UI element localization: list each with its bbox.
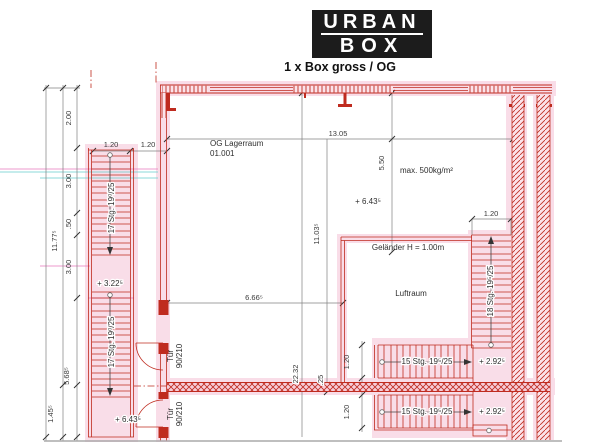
elevation-left-bottom: + 6.43⁵ (115, 415, 141, 424)
dim-0-25: .25 (316, 375, 325, 385)
dim-5-685: 5.68⁵ (62, 367, 71, 385)
bottom-wall (167, 383, 550, 392)
floor-plan-page: URBAN BOX 1 x Box gross / OG (0, 0, 600, 448)
door-2-size: 90/210 (175, 401, 184, 426)
dim-3-00-b: 3.00 (64, 260, 73, 275)
door-1-label: Tür (166, 350, 175, 362)
dim-2-00: 2.00 (64, 111, 73, 126)
dim-11-035: 11.03⁵ (312, 223, 321, 244)
stair-label-bottom-upper: 15 Stg. 19⁵/25 (402, 357, 453, 366)
room-number: 01.001 (210, 149, 235, 158)
dim-1-455: 1.45⁵ (46, 405, 55, 423)
dim-1-20-bottom-a: 1.20 (342, 355, 351, 370)
dim-13-05: 13.05 (329, 129, 348, 138)
room-name: OG Lagerraum (210, 139, 264, 148)
load-note: max. 500kg/m² (400, 166, 453, 175)
railing-label: Geländer H = 1.00m (372, 243, 445, 252)
dim-11-775: 11.77⁵ (50, 230, 59, 251)
stair-label-right: 18 Stg. 19⁵/25 (486, 265, 495, 316)
door-1-size: 90/210 (175, 343, 184, 368)
elevation-room: + 6.43⁵ (355, 197, 381, 206)
elevation-right-upper: + 2.92⁵ (479, 357, 505, 366)
dim-1-20-left-a: 1.20 (104, 140, 119, 149)
dim-1-20-right: 1.20 (484, 209, 499, 218)
dim-3-00-a: 3.00 (64, 174, 73, 189)
dim-1-20-bottom-b: 1.20 (342, 405, 351, 420)
stair-label-left-lower: 17 Stg. 19⁰/25 (107, 316, 116, 367)
elevation-right-lower: + 2.92⁵ (479, 407, 505, 416)
stair-label-bottom-lower: 15 Stg. 19⁵/25 (402, 407, 453, 416)
void-label: Luftraum (395, 289, 427, 298)
dim-1-20-left-b: 1.20 (141, 140, 156, 149)
door-2-label: Tür (166, 408, 175, 420)
dim-0-50: .50 (64, 219, 73, 229)
dim-5-50: 5.50 (377, 156, 386, 171)
stair-label-left-upper: 17 Stg. 19⁰/25 (107, 182, 116, 233)
dim-6-665: 6.66⁵ (245, 293, 263, 302)
dim-22-32: 22.32 (291, 365, 300, 384)
elevation-mid-landing: + 3.22⁵ (97, 279, 123, 288)
floor-plan-drawing: OG Lagerraum 01.001 max. 500kg/m² Geländ… (0, 0, 600, 448)
